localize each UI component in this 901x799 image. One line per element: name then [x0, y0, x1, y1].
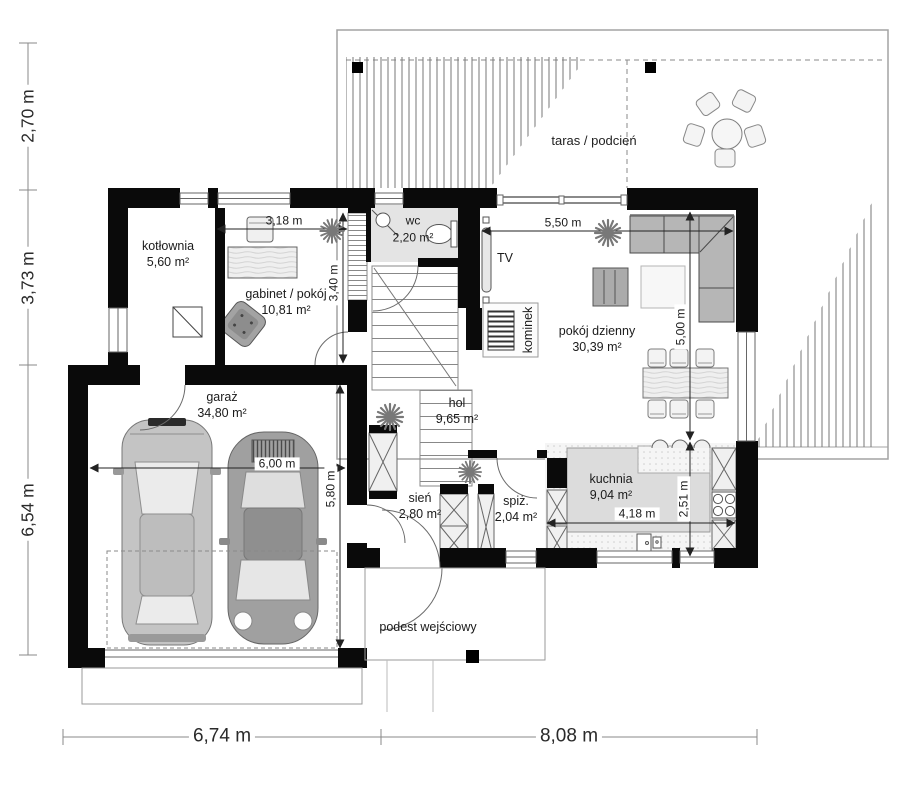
floor-plan-canvas: 2,70 m 3,73 m 6,54 m 6,74 m 8,08 m 3,18 … [0, 0, 901, 799]
room-label-kotlownia: kotłownia [142, 240, 194, 254]
dining-table [643, 368, 728, 398]
dim-living-width: 5,50 m [545, 216, 582, 229]
gabinet-furniture [218, 217, 297, 349]
hob [712, 492, 736, 518]
window [680, 551, 714, 563]
room-label-kuchnia: kuchnia [589, 473, 632, 487]
zone-label-tv: TV [497, 252, 513, 266]
zone-label-taras: taras / podcień [551, 134, 636, 148]
dining-table-set [643, 349, 728, 418]
zone-label-podest: podest wejściowy [379, 621, 476, 635]
dim-living-depth: 5,00 m [674, 305, 687, 350]
terrace-hatch-right [758, 196, 875, 447]
terrace-column [645, 62, 656, 73]
desk [228, 247, 297, 278]
kitchen [545, 440, 736, 561]
pantry-door-arc [497, 458, 537, 498]
wardrobe [369, 433, 397, 491]
room-area-garaz: 34,80 m² [197, 407, 246, 421]
plant-icon [459, 461, 481, 483]
boiler [173, 307, 202, 337]
plant-icon [595, 220, 621, 246]
bar-stools [652, 440, 710, 448]
terrace-column [352, 62, 363, 73]
room-area-kotlownia: 5,60 m² [147, 256, 189, 270]
armchair [593, 268, 628, 306]
terrace-glazing [497, 195, 627, 205]
window [375, 193, 403, 204]
wardrobe [440, 494, 468, 526]
porch-column [466, 650, 479, 663]
living-room-furniture [593, 214, 734, 418]
dim-gabinet-width: 3,18 m [266, 214, 303, 227]
room-label-spiz: spiż. [503, 495, 529, 509]
dim-kitchen-width: 4,18 m [615, 507, 660, 520]
zone-label-kominek: kominek [522, 307, 536, 354]
tv-unit [482, 217, 491, 303]
bottom-dimension-chain [63, 729, 757, 745]
window [109, 308, 127, 352]
washbasin [376, 213, 390, 227]
dim-bottom-garage: 6,74 m [189, 727, 255, 748]
dim-gabinet-depth: 3,40 m [327, 261, 340, 306]
dim-kitchen-depth: 2,51 m [677, 477, 690, 522]
room-label-wc: wc [406, 214, 421, 227]
window [180, 193, 208, 204]
room-area-sien: 2,80 m² [399, 508, 441, 522]
dim-bottom-living: 8,08 m [536, 727, 602, 748]
window [738, 332, 755, 441]
dim-left-garage: 6,54 m [18, 479, 37, 541]
entry-porch [365, 568, 545, 712]
room-label-gabinet: gabinet / pokój [245, 288, 326, 302]
plant-icon [320, 219, 343, 242]
room-label-hol: hol [449, 397, 466, 411]
pantry-cabinet [547, 490, 567, 524]
room-area-spiz: 2,04 m² [495, 511, 537, 525]
kitchen-island-gap [638, 446, 710, 473]
room-label-garaz: garaż [206, 391, 237, 405]
window [597, 551, 672, 563]
terrace-hatch-top [346, 57, 580, 188]
kitchen-tall-cabinet [712, 448, 736, 490]
rug [641, 266, 685, 308]
room-area-pokoj-dzienny: 30,39 m² [572, 341, 621, 355]
dim-garage-width: 6,00 m [255, 457, 300, 470]
window [218, 193, 290, 204]
dim-garage-depth: 5,80 m [324, 467, 337, 512]
room-label-sien: sień [409, 492, 432, 506]
dim-left-upper: 3,73 m [18, 247, 37, 309]
window [506, 551, 536, 563]
room-area-gabinet: 10,81 m² [261, 304, 310, 318]
room-area-wc: 2,20 m² [393, 231, 434, 244]
driveway-apron [82, 668, 362, 704]
kitchen-tall-cabinet [712, 520, 736, 550]
dim-left-terrace: 2,70 m [18, 85, 37, 147]
garage-gate [105, 650, 338, 657]
room-area-kuchnia: 9,04 m² [590, 489, 632, 503]
terrace-dining-set [682, 88, 766, 167]
room-area-hol: 9,65 m² [436, 413, 478, 427]
plant-icon [377, 404, 403, 430]
room-label-pokoj-dzienny: pokój dzienny [559, 325, 635, 339]
car-1 [113, 418, 221, 645]
